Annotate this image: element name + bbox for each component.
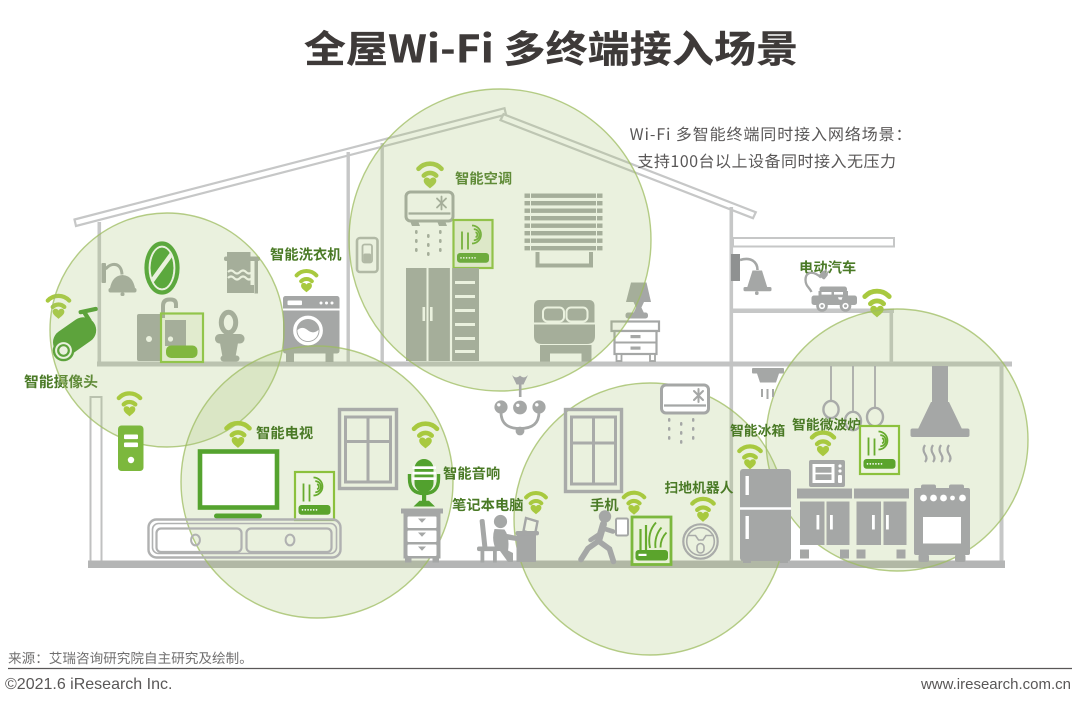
svg-text:©2021.6 iResearch Inc.: ©2021.6 iResearch Inc. xyxy=(5,676,172,693)
svg-text:www.iresearch.com.cn: www.iresearch.com.cn xyxy=(920,676,1071,693)
